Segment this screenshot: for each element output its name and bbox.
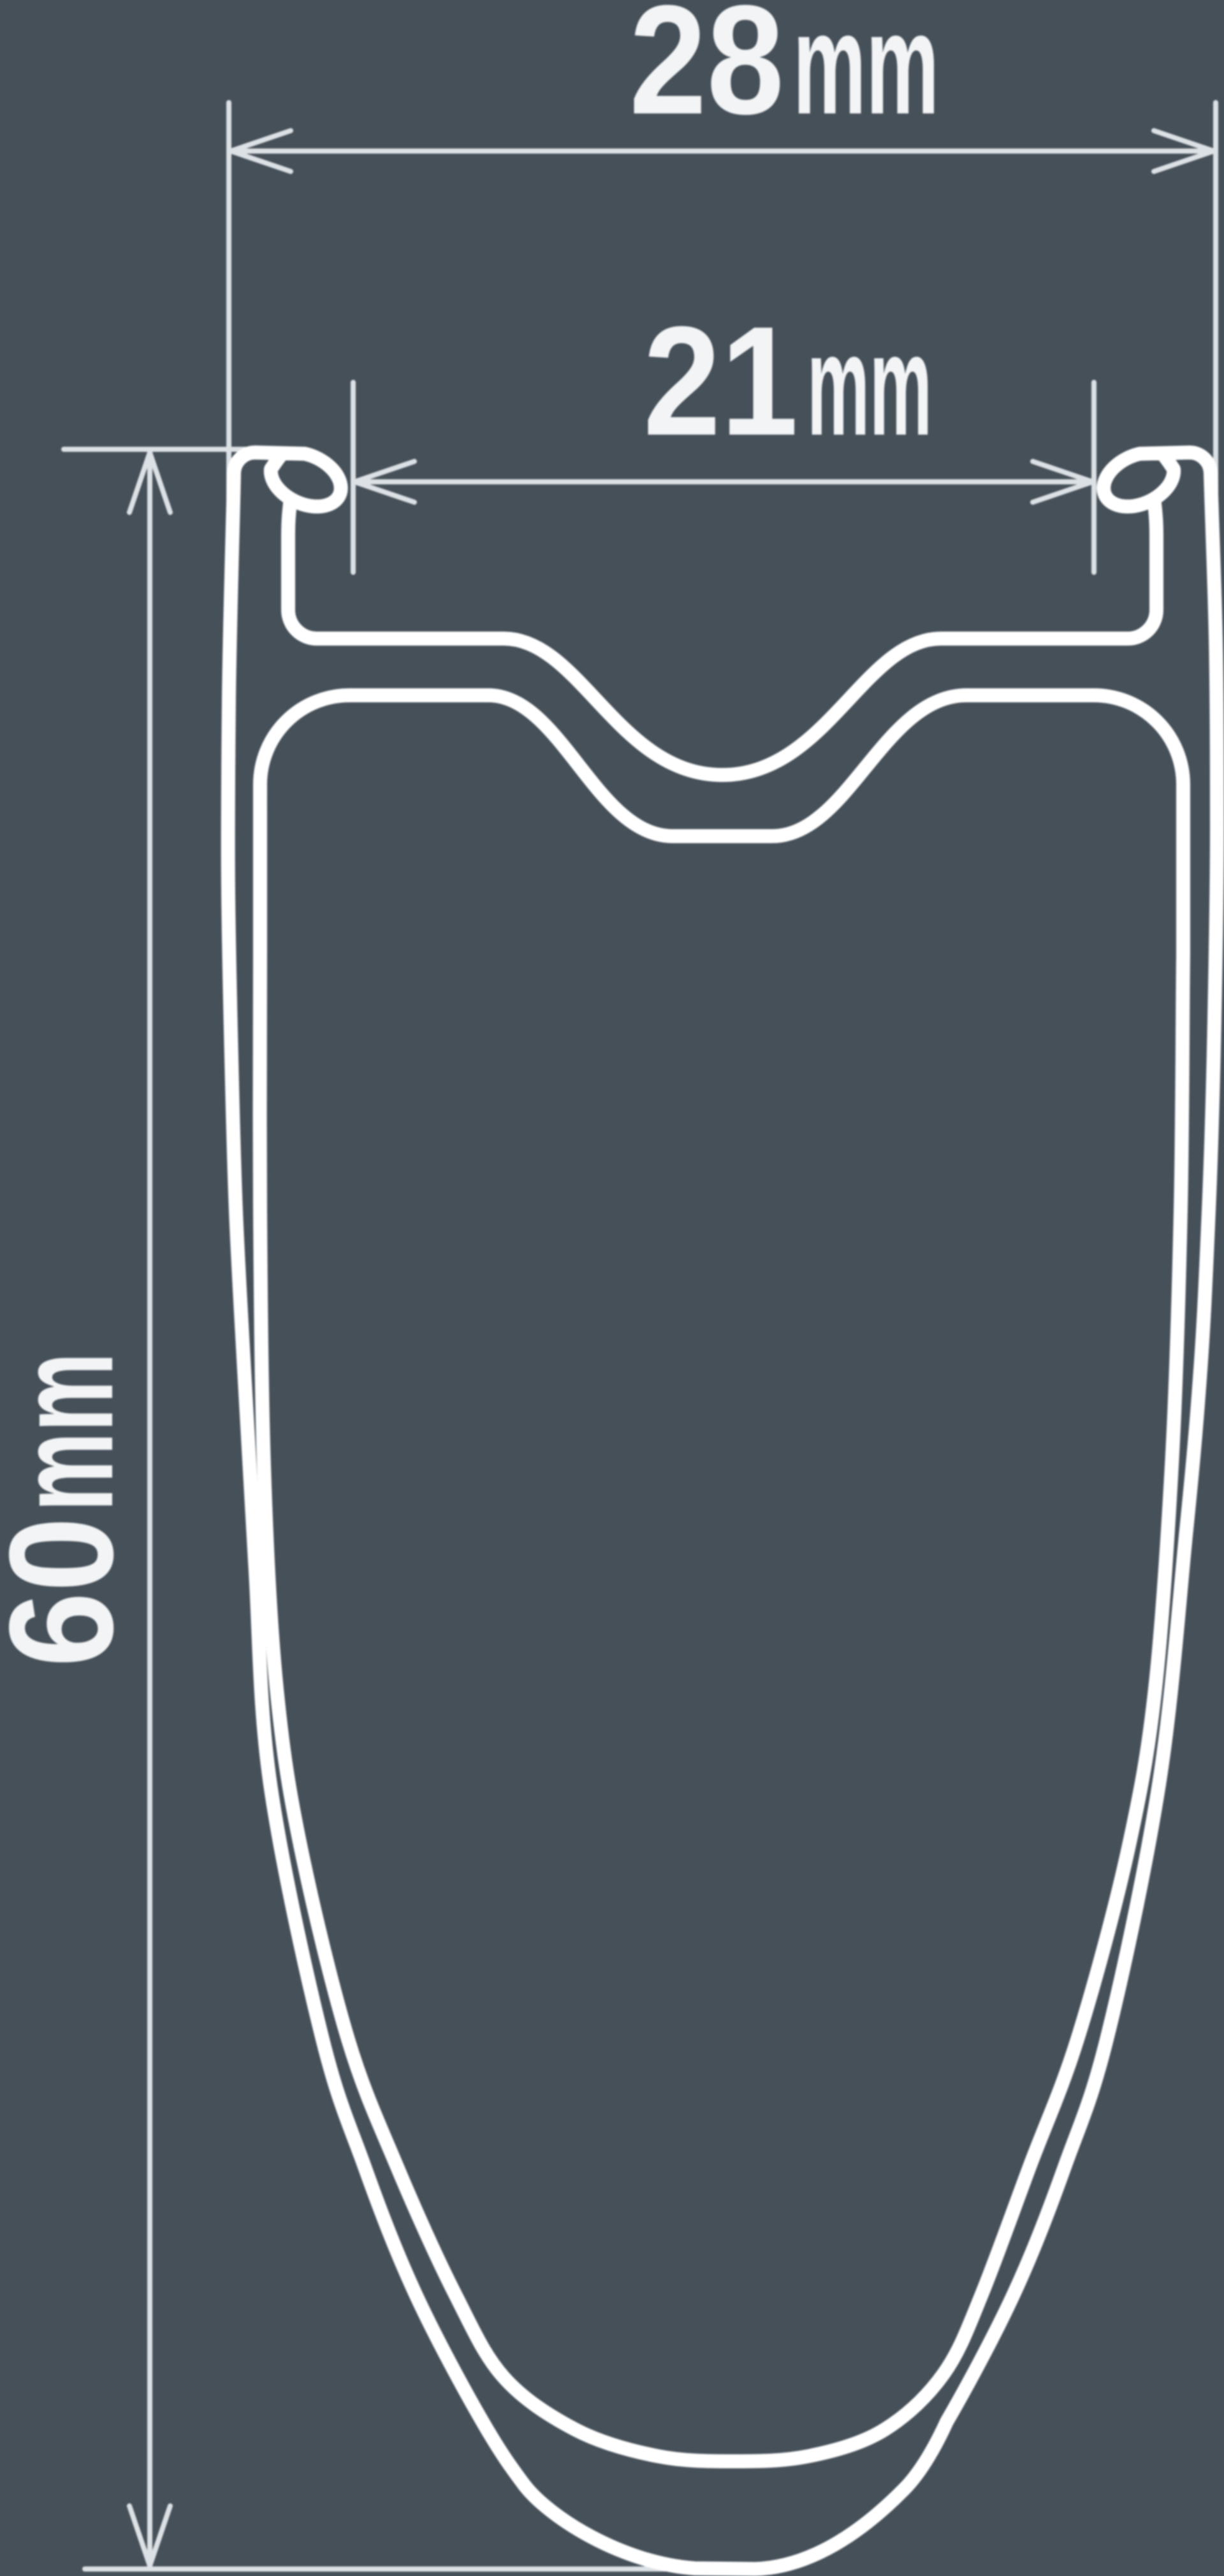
svg-text:21: 21 (643, 294, 798, 468)
svg-text:60: 60 (0, 1517, 144, 1667)
svg-text:mm: mm (0, 1352, 142, 1512)
svg-text:mm: mm (807, 305, 932, 466)
svg-text:28: 28 (629, 0, 784, 147)
svg-text:mm: mm (793, 0, 939, 145)
